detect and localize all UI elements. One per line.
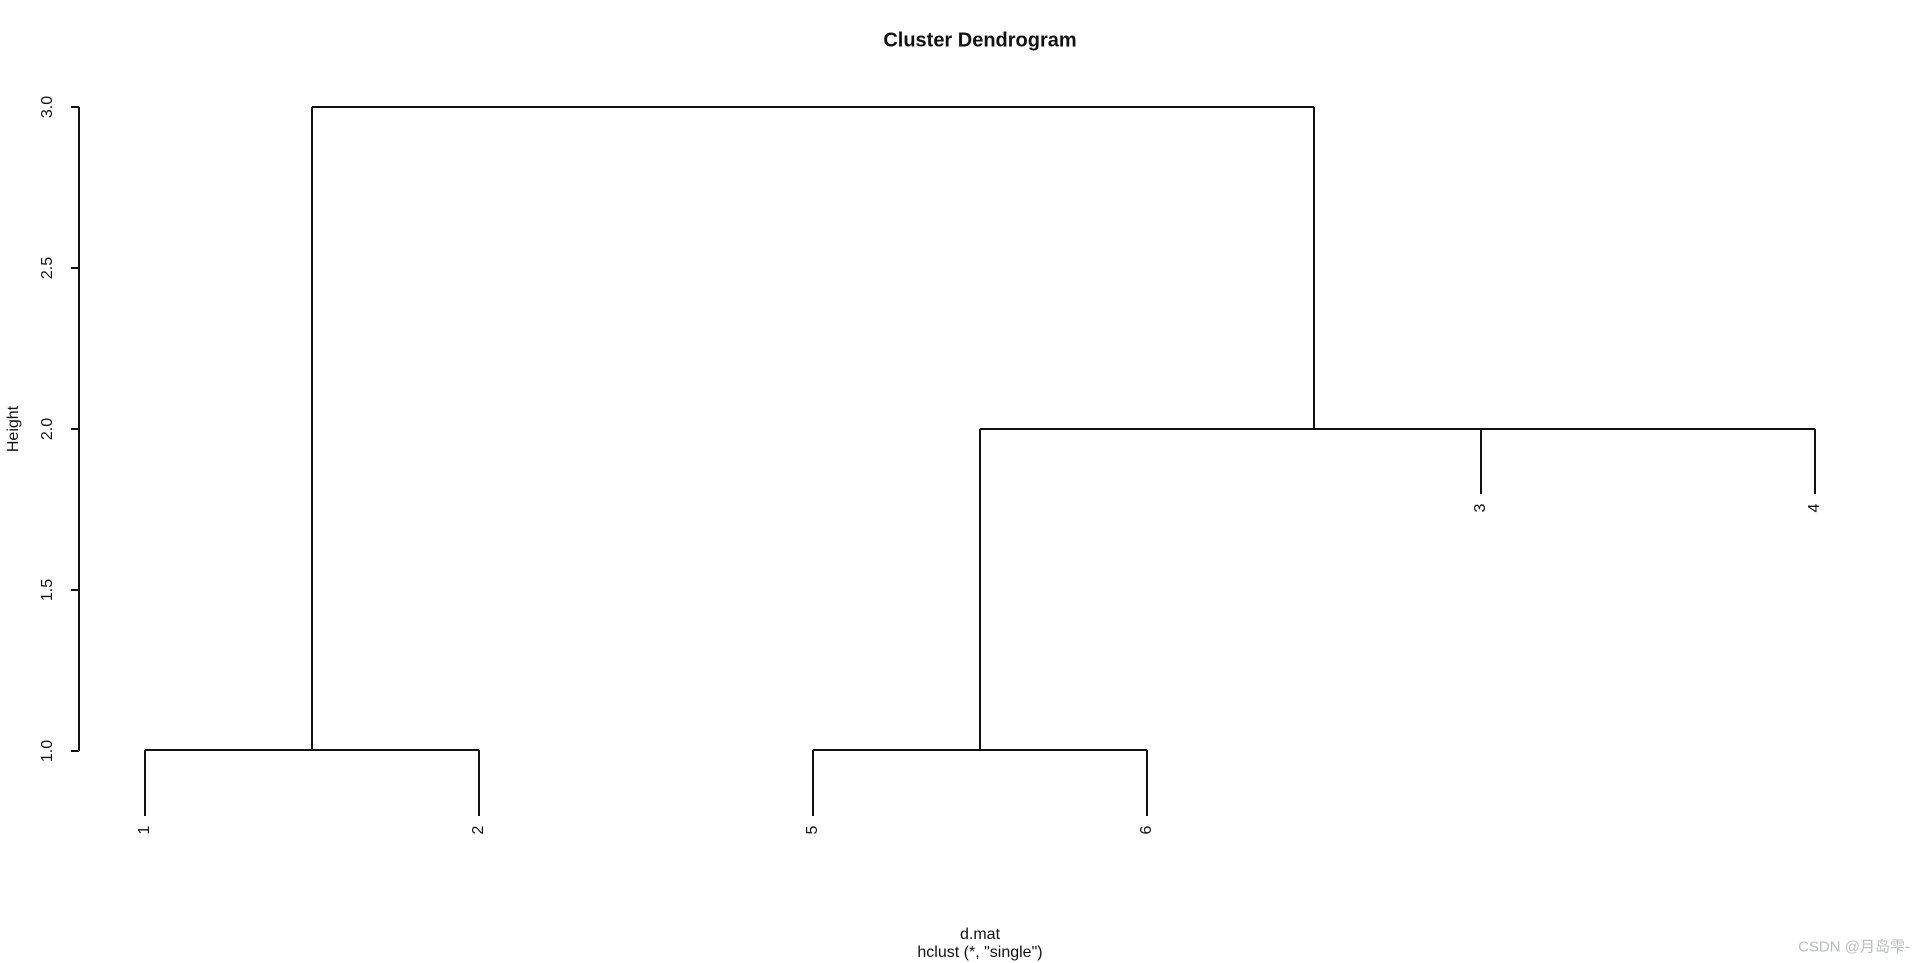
y-axis-tick-label: 2.0: [39, 418, 57, 440]
y-axis-tick-label: 1.0: [39, 740, 57, 762]
leaf-label: 4: [1806, 504, 1824, 513]
dendrogram-lines: [0, 0, 1920, 963]
y-axis-tick-label: 2.5: [39, 257, 57, 279]
leaf-label: 6: [1138, 826, 1156, 835]
x-axis-label: d.mat: [960, 926, 1000, 944]
leaf-label: 5: [804, 826, 822, 835]
leaf-label: 1: [136, 826, 154, 835]
watermark-text: CSDN @月岛雫-: [1798, 936, 1910, 957]
y-axis-tick-label: 1.5: [39, 579, 57, 601]
leaf-label: 3: [1472, 504, 1490, 513]
chart-title: Cluster Dendrogram: [883, 30, 1076, 53]
y-axis-title: Height: [5, 406, 23, 452]
r-plot-window: Cluster Dendrogram Height 3.02.52.01.51.…: [0, 0, 1920, 963]
x-axis-sublabel: hclust (*, "single"): [917, 944, 1042, 962]
leaf-label: 2: [470, 826, 488, 835]
y-axis-tick-label: 3.0: [39, 96, 57, 118]
